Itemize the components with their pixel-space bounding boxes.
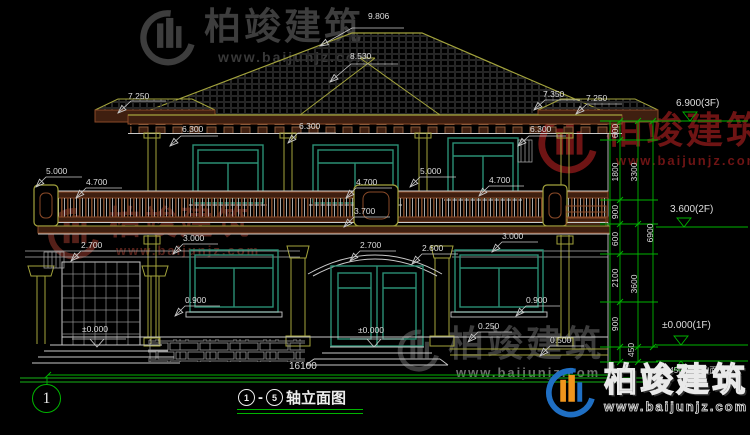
- dim-label: 2.700: [360, 241, 381, 250]
- watermark-url: www.baijunjz.com: [456, 365, 604, 380]
- dim-label: ±0.000: [82, 325, 108, 334]
- dim-label: -0.450(室外地面): [660, 367, 720, 375]
- dim-label: 0.900: [526, 296, 547, 305]
- dim-label: 8.530: [350, 52, 371, 61]
- dim-label: 5.000: [420, 167, 441, 176]
- dim-label: 3300: [630, 163, 639, 182]
- dim-label: 0.250: [478, 322, 499, 331]
- brand-logo-icon: [536, 112, 598, 174]
- title-text: 轴立面图: [286, 387, 346, 408]
- dimension-leaders: [36, 28, 622, 356]
- dim-label: 6.300: [530, 125, 551, 134]
- roof: [95, 33, 658, 122]
- dim-label: 600: [611, 124, 620, 138]
- dim-label: 2.700: [81, 241, 102, 250]
- watermark-brand: 柏竣建筑: [448, 326, 604, 362]
- dimension-chains: [45, 112, 748, 385]
- baijun-logo-icon: [544, 363, 596, 421]
- dim-label: 6900: [646, 224, 655, 243]
- axis-end-bubble: 5: [266, 389, 283, 406]
- dim-label: 900: [611, 205, 620, 219]
- dim-label: 7.350: [543, 90, 564, 99]
- balcony: [34, 185, 610, 234]
- dim-label: 9.806: [368, 12, 389, 21]
- dim-label: 7.250: [128, 92, 149, 101]
- dim-label: 3600: [630, 275, 639, 294]
- dim-label: 6.300: [299, 122, 320, 131]
- brand-logo-icon: [396, 326, 440, 374]
- dim-label: 16100: [289, 362, 317, 372]
- dim-label: 6.900(3F): [676, 99, 719, 109]
- dim-label: 5.000: [46, 167, 67, 176]
- dim-label: 3.000: [502, 232, 523, 241]
- watermark-top-left: 柏竣建筑 www.baijunjz.com: [138, 8, 371, 66]
- elevation-drawing: [0, 0, 750, 435]
- dim-label: 3.600(2F): [670, 205, 713, 215]
- dim-label: 600: [611, 232, 620, 246]
- dim-label: 450: [627, 343, 636, 357]
- brand-logo-icon: [46, 206, 100, 260]
- watermark-url: www.baijunjz.com: [218, 49, 371, 65]
- dim-label: 900: [611, 317, 620, 331]
- dim-label: 4.700: [489, 176, 510, 185]
- dim-label: 1800: [611, 163, 620, 182]
- wall-grille: [518, 140, 532, 162]
- dim-label: 2100: [611, 269, 620, 288]
- window: [193, 138, 518, 203]
- dim-label: 0.900: [185, 296, 206, 305]
- second-floor: [144, 133, 608, 375]
- dim-label: 3.700: [354, 207, 375, 216]
- window: [190, 250, 543, 312]
- watermark-brand: 柏竣建筑: [204, 8, 371, 45]
- axis-start-bubble: 1: [238, 389, 255, 406]
- brand-logo-icon: [138, 8, 196, 66]
- dim-label: 2.600: [422, 244, 443, 253]
- title-underline: [237, 409, 363, 414]
- dim-label: 3.000: [183, 234, 204, 243]
- watermark-brand: 柏竣建筑: [606, 112, 750, 149]
- dim-label: ±0.000: [358, 326, 384, 335]
- dim-label: 7.250: [586, 94, 607, 103]
- dim-label: ±0.000(1F): [662, 321, 711, 331]
- drawing-title: 1 - 5 轴立面图: [238, 387, 346, 408]
- title-dash: -: [258, 389, 263, 406]
- cad-canvas: 柏竣建筑 www.baijunjz.com 柏竣建筑 www.baijunjz.…: [0, 0, 750, 435]
- watermark-url: www.baijunjz.com: [604, 399, 748, 414]
- dim-label: 4.700: [86, 178, 107, 187]
- watermark-left: 柏竣建筑 www.baijunjz.com: [46, 206, 260, 260]
- watermark-url: www.baijunjz.com: [116, 243, 260, 258]
- dim-label: 4.700: [356, 178, 377, 187]
- watermark-bottom-center: 柏竣建筑 www.baijunjz.com: [396, 326, 604, 380]
- dim-label: 6.300: [182, 125, 203, 134]
- first-floor: [25, 235, 608, 346]
- axis-bubble-1: 1: [32, 384, 61, 413]
- watermark-right: 柏竣建筑 www.baijunjz.com: [536, 112, 750, 174]
- dim-label: 0.500: [550, 336, 571, 345]
